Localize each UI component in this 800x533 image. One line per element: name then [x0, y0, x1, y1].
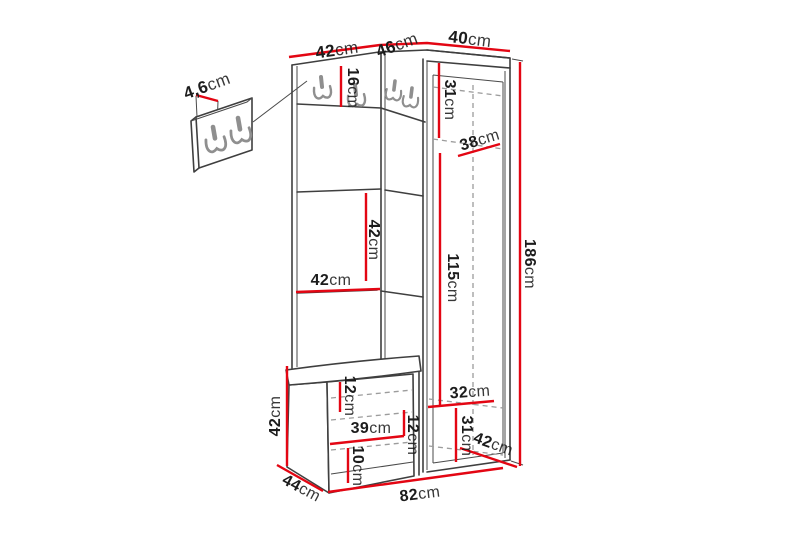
dim-bench-bottom-10cm: 10cm: [349, 446, 365, 487]
dim-unit: cm: [417, 484, 441, 504]
dim-overall-height-186cm: 186cm: [521, 239, 537, 289]
furniture-dimension-diagram: 42cm 46cm 40cm 4,6cm 16cm 31cm 38cm 42cm…: [0, 0, 800, 533]
dim-wardrobe-top-31cm: 31cm: [441, 80, 457, 121]
coat-hook-icon: [385, 80, 402, 101]
dim-wardrobe-bottom-width-32cm: 32cm: [449, 384, 491, 403]
coat-hook-icon: [402, 87, 419, 108]
dim-value: 39: [351, 420, 370, 437]
dim-unit: cm: [349, 464, 366, 486]
dim-value: 115: [444, 253, 461, 280]
dim-value: 42: [311, 272, 330, 289]
furniture-line-drawing: [0, 0, 800, 533]
dim-wardrobe-width-40cm: 40cm: [448, 28, 493, 50]
dim-bench-width-39cm: 39cm: [351, 421, 392, 437]
dim-unit: cm: [341, 394, 358, 416]
dim-value: 82: [399, 486, 420, 505]
dim-unit: cm: [521, 267, 538, 289]
dim-line-42cm-horizontal: [296, 289, 380, 292]
dim-value: 186: [521, 239, 538, 267]
dim-value: 42: [365, 220, 382, 239]
wall-hook-panel-detail: [191, 98, 252, 172]
dim-wardrobe-interior-115cm: 115cm: [444, 253, 460, 302]
dim-unit: cm: [441, 98, 458, 120]
dim-value: 31: [441, 80, 458, 99]
dim-unit: cm: [444, 280, 461, 302]
coat-hook-icon: [313, 76, 332, 99]
dim-unit: cm: [334, 38, 360, 60]
dim-value: 31: [458, 416, 475, 435]
dim-unit: cm: [468, 383, 491, 402]
dim-panel-width-42cm: 42cm: [311, 273, 352, 289]
dim-value: 16: [344, 68, 361, 87]
dim-unit: cm: [344, 86, 361, 108]
dim-unit: cm: [404, 433, 421, 455]
dim-unit: cm: [267, 396, 284, 418]
dim-hook-rail-height-16cm: 16cm: [344, 68, 360, 109]
dim-unit: cm: [365, 238, 382, 260]
dim-bench-top-12cm: 12cm: [341, 376, 357, 417]
dim-base-12cm: 12cm: [404, 415, 420, 456]
dim-unit: cm: [369, 420, 391, 437]
dim-value: 32: [449, 384, 469, 402]
coat-hooks: [313, 76, 420, 108]
dim-value: 10: [349, 446, 366, 465]
dim-panel-section-42cm: 42cm: [365, 220, 381, 261]
dim-value: 40: [447, 27, 469, 48]
dim-unit: cm: [329, 272, 351, 289]
dim-bench-height-42cm: 42cm: [268, 396, 284, 437]
dim-value: 42: [267, 418, 284, 437]
dim-value: 12: [341, 376, 358, 395]
dim-value: 12: [404, 415, 421, 434]
dim-wardrobe-bottom-height-31cm: 31cm: [458, 416, 474, 457]
dim-unit: cm: [467, 29, 493, 51]
dim-value: 42: [314, 41, 336, 63]
